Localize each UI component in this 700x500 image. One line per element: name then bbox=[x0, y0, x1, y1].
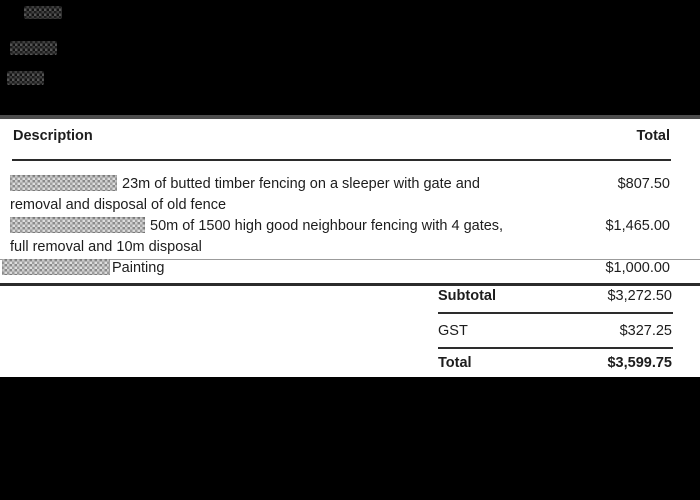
table-header-row: Description Total bbox=[13, 127, 670, 145]
redacted-text-block bbox=[7, 71, 44, 85]
line-item-row: 50m of 1500 high good neighbour fencing … bbox=[10, 216, 670, 259]
summary-row-total: Total $3,599.75 bbox=[438, 354, 672, 372]
subtotal-value: $3,272.50 bbox=[607, 287, 672, 305]
summary-row-subtotal: Subtotal $3,272.50 bbox=[438, 287, 672, 305]
summary-row-gst: GST $327.25 bbox=[438, 322, 672, 340]
total-value: $3,599.75 bbox=[607, 354, 672, 372]
line-item-row: 23m of butted timber fencing on a sleepe… bbox=[10, 174, 670, 217]
subtotal-label: Subtotal bbox=[438, 287, 496, 305]
item-description-line: full removal and 10m disposal bbox=[10, 237, 593, 258]
items-summary-divider bbox=[0, 283, 700, 286]
item-description-text: Painting bbox=[112, 260, 164, 276]
item-total: $1,465.00 bbox=[605, 216, 670, 237]
item-description-text: 23m of butted timber fencing on a sleepe… bbox=[122, 176, 480, 192]
total-label: Total bbox=[438, 354, 472, 372]
redacted-text-block bbox=[10, 41, 57, 55]
summary-divider bbox=[438, 347, 673, 349]
item-description-line: 23m of butted timber fencing on a sleepe… bbox=[10, 174, 606, 195]
gst-value: $327.25 bbox=[620, 322, 672, 340]
column-header-total: Total bbox=[636, 127, 670, 145]
gst-label: GST bbox=[438, 322, 468, 340]
document-top-edge bbox=[0, 115, 700, 119]
item-description: 50m of 1500 high good neighbour fencing … bbox=[10, 216, 593, 259]
line-item-row: Painting $1,000.00 bbox=[10, 258, 670, 279]
item-total: $807.50 bbox=[618, 174, 670, 195]
item-description-line: Painting bbox=[10, 258, 593, 279]
summary-divider bbox=[438, 312, 673, 314]
screenshot-background: Description Total 23m of butted timber f… bbox=[0, 0, 700, 500]
column-header-description: Description bbox=[13, 127, 93, 145]
item-description: 23m of butted timber fencing on a sleepe… bbox=[10, 174, 606, 217]
header-divider bbox=[12, 159, 671, 161]
invoice-document: Description Total 23m of butted timber f… bbox=[0, 115, 700, 377]
item-total: $1,000.00 bbox=[605, 258, 670, 279]
redacted-item-prefix bbox=[10, 175, 117, 191]
redacted-item-prefix bbox=[10, 217, 145, 233]
redacted-item-prefix bbox=[2, 259, 110, 275]
item-description-text: 50m of 1500 high good neighbour fencing … bbox=[150, 218, 503, 234]
item-description-line: removal and disposal of old fence bbox=[10, 195, 606, 216]
redacted-text-block bbox=[24, 6, 62, 19]
item-description-line: 50m of 1500 high good neighbour fencing … bbox=[10, 216, 593, 237]
item-description: Painting bbox=[10, 258, 593, 279]
